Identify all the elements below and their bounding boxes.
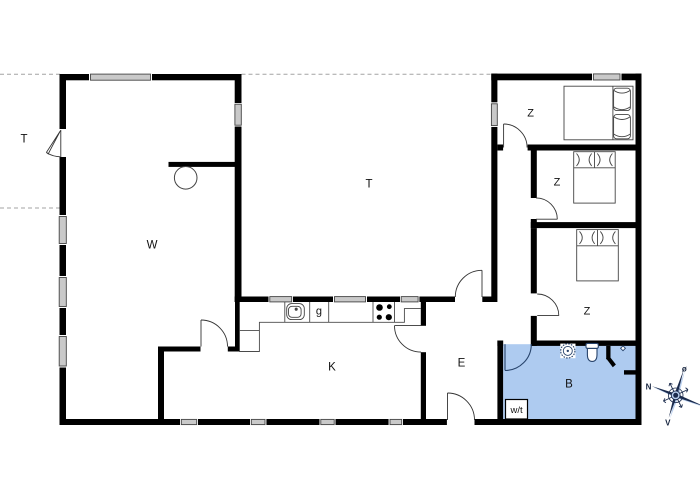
svg-text:E: E — [458, 357, 466, 369]
svg-text:Z: Z — [584, 305, 591, 317]
svg-text:T: T — [20, 133, 27, 145]
svg-text:w/t: w/t — [510, 405, 524, 416]
svg-text:B: B — [565, 378, 573, 390]
svg-text:g: g — [316, 306, 322, 318]
svg-text:K: K — [328, 361, 336, 373]
svg-text:N: N — [646, 383, 652, 392]
svg-text:W: W — [147, 239, 158, 251]
svg-text:ø: ø — [682, 364, 687, 373]
svg-text:Z: Z — [554, 176, 561, 188]
svg-text:Z: Z — [527, 107, 534, 119]
svg-text:T: T — [365, 178, 372, 190]
svg-text:V: V — [665, 419, 671, 428]
